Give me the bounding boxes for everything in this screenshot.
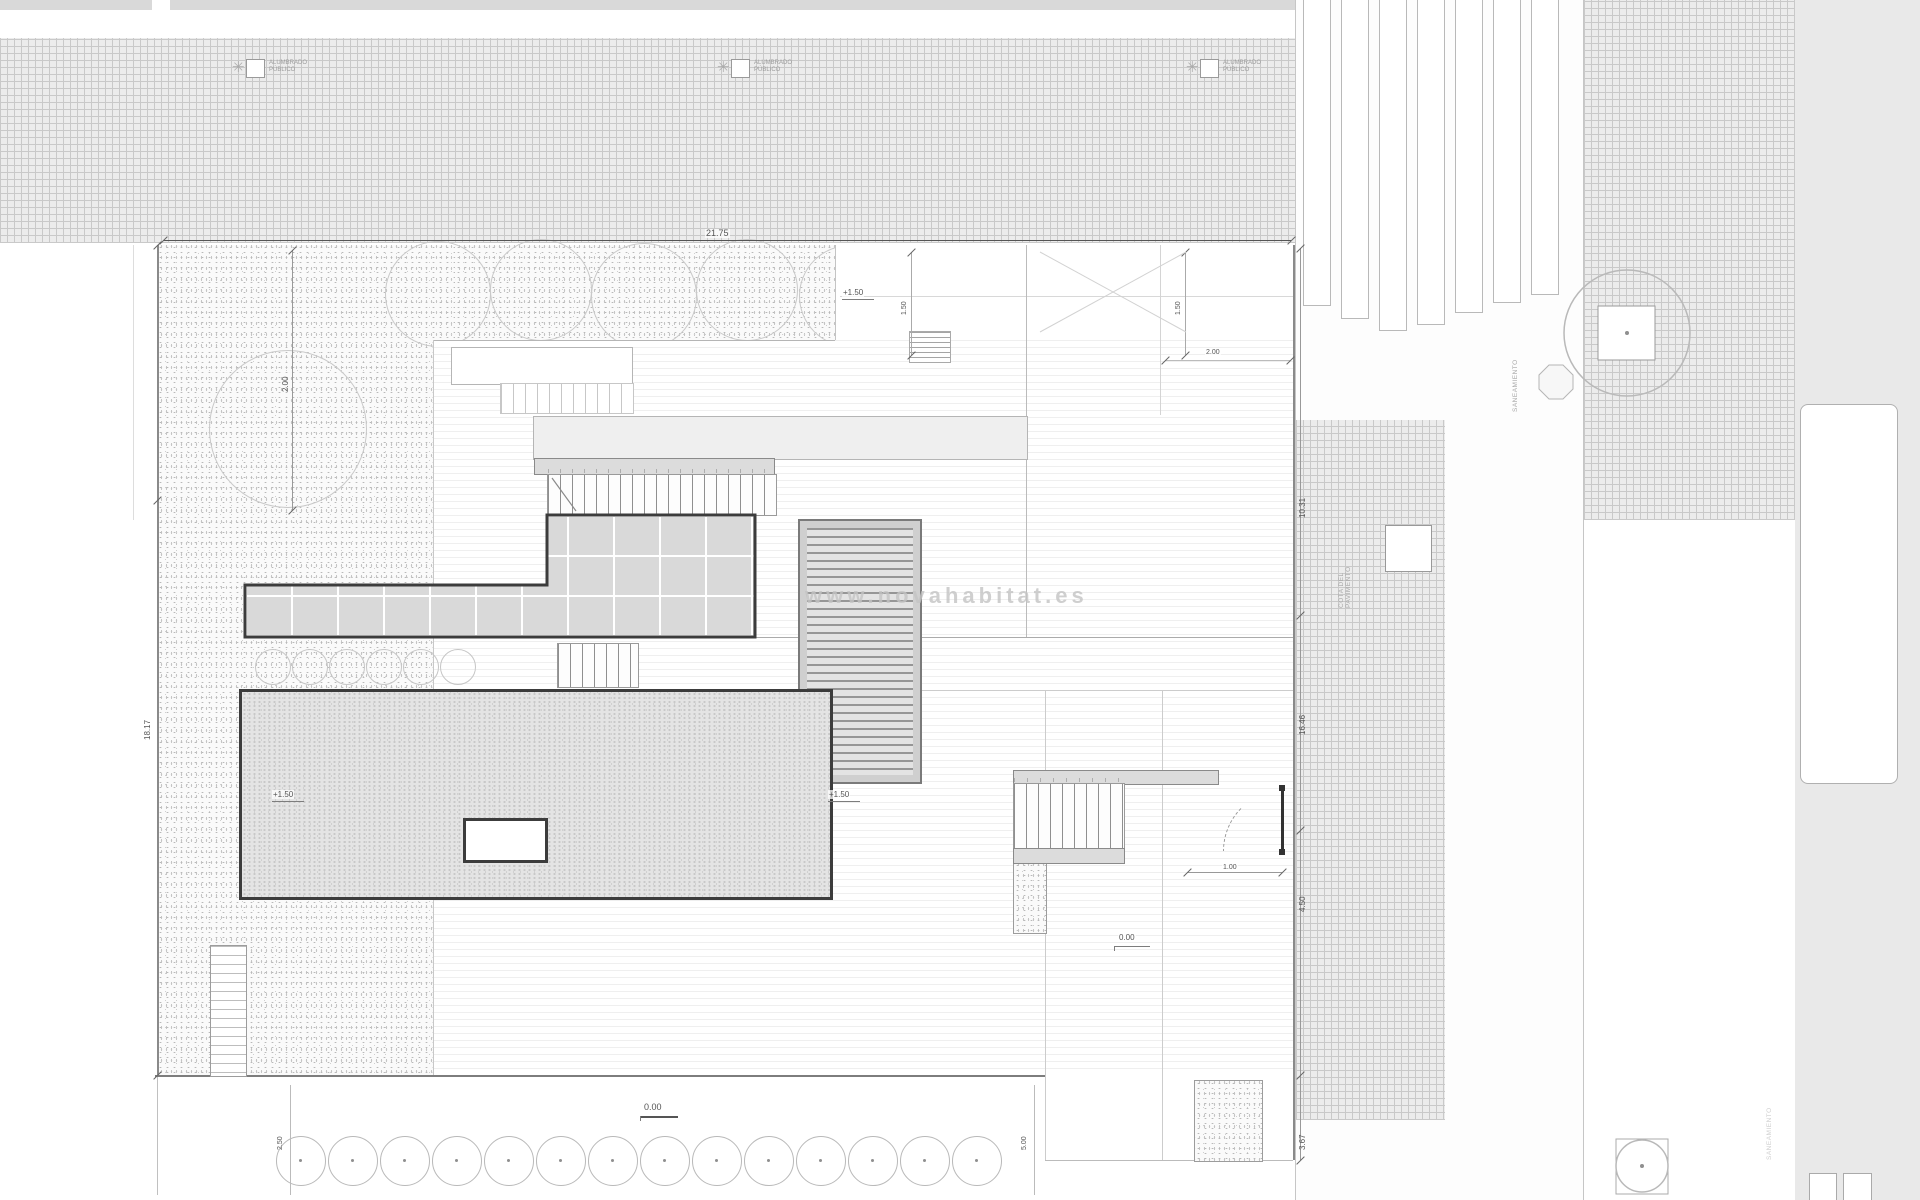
tree-canopy-circle (591, 243, 697, 349)
level-drive-tick (1114, 946, 1115, 951)
level-terrace-top: +1.50 (842, 288, 864, 297)
street-tree-trunk (351, 1159, 354, 1162)
site-plan-drawing: ✳ALUMBRADO PÚBLICO✳ALUMBRADO PÚBLICO✳ALU… (0, 0, 1920, 1200)
dim-north-stub-a: 1.50 (900, 301, 909, 315)
level-walkway-mid: +1.50 (828, 790, 850, 799)
street-tree-trunk (559, 1159, 562, 1162)
level-street-south: 0.00 (643, 1103, 663, 1112)
tree-planter-square-south (1616, 1139, 1668, 1194)
street-tree-canopy-south (1616, 1140, 1668, 1192)
west-faint-line (133, 245, 134, 520)
dim-north-stub-b: 1.50 (1174, 301, 1183, 315)
dim-entry-offset: 2.00 (1205, 348, 1221, 357)
tree-canopy-circle (209, 350, 367, 508)
pavement-note-line1: COTA DEL (1338, 566, 1345, 608)
pavement-note: COTA DEL PAVIMENTO (1338, 566, 1352, 608)
north-curb-strip (0, 0, 1295, 10)
planting-bed-east (1013, 862, 1047, 934)
dim-south-stub-left: 2.50 (276, 1136, 285, 1150)
side-gate-fence (210, 945, 247, 1077)
crosswalk-stripe (1417, 0, 1445, 325)
pavement-note-line2: PAVIMENTO (1345, 566, 1352, 608)
dim-line-east-chain (1300, 248, 1301, 1160)
north-curb-gap (152, 0, 170, 10)
dim-north-width: 21.75 (705, 229, 730, 238)
tree-canopy-circle (696, 239, 798, 341)
street-lamp-label: ALUMBRADO PÚBLICO (1223, 60, 1265, 74)
street-tree-trunk (767, 1159, 770, 1162)
street-tree-trunk (923, 1159, 926, 1162)
gate-leaf (1281, 790, 1284, 850)
gate-hinge-top (1279, 785, 1285, 791)
street-tree-trunk (403, 1159, 406, 1162)
street-tree-trunk (507, 1159, 510, 1162)
street-lamp-icon (1200, 59, 1219, 78)
street-tree-trunk (715, 1159, 718, 1162)
gate-hinge-bottom (1279, 849, 1285, 855)
dim-line-entry (1165, 360, 1290, 361)
stair-step-numbers (1014, 778, 1124, 782)
watermark: www.novahabitat.es (805, 583, 1088, 609)
crosswalk-stripe (1379, 0, 1407, 331)
main-stairs (547, 474, 777, 516)
parcel-east-boundary (1293, 245, 1295, 1160)
street-lamp-label: ALUMBRADO PÚBLICO (754, 60, 796, 74)
shrub-circle (292, 649, 328, 685)
sewer-label-south: SANEAMIENTO (1766, 1107, 1773, 1160)
parcel-west-boundary (157, 245, 159, 1075)
dim-east-seg-2: 16.46 (1298, 715, 1307, 735)
street-tree-trunk (871, 1159, 874, 1162)
crosswalk-stripe (1531, 0, 1559, 295)
dim-stub-south-left (290, 1085, 291, 1195)
street-tree-trunk (455, 1159, 458, 1162)
shrub-circle (440, 649, 476, 685)
street-planter-long (1800, 404, 1898, 784)
upper-level-slab (533, 416, 1028, 460)
shrub-circle (329, 649, 365, 685)
crosswalk-stripe (1455, 0, 1483, 313)
dim-stub-a (911, 252, 912, 355)
level-terrace-top-line (842, 299, 874, 300)
utility-box (1385, 525, 1432, 572)
street-tree-trunk (819, 1159, 822, 1162)
street-tree-trunk (975, 1159, 978, 1162)
street-lamp-icon (246, 59, 265, 78)
crosswalk-stripe (1341, 0, 1369, 319)
lamp-star-icon: ✳ (232, 60, 245, 75)
street-lamp-label: ALUMBRADO PÚBLICO (269, 60, 311, 74)
parcel-west-extension (157, 1075, 158, 1195)
crosswalk-stripe (1493, 0, 1521, 303)
street-tree-trunk (663, 1159, 666, 1162)
level-garden-west-line (272, 801, 304, 802)
tree-canopy-circle (490, 239, 592, 341)
upper-stairs (500, 383, 634, 414)
drive-mid-line (1162, 690, 1163, 1160)
tree-canopy-circle (385, 241, 491, 347)
dim-line-north (163, 240, 1291, 241)
dim-west-height: 18.17 (143, 720, 152, 740)
street-tree-trunk (299, 1159, 302, 1162)
dim-line-gate (1187, 872, 1282, 873)
level-drive: 0.00 (1118, 933, 1136, 942)
dim-south-stub-right: 5.00 (1020, 1136, 1029, 1150)
porch-canopy (451, 347, 633, 385)
dim-east-seg-3: 4.50 (1298, 896, 1307, 912)
house-partition (1160, 245, 1161, 415)
lower-building-roof (239, 689, 833, 900)
level-drive-line (1114, 946, 1150, 947)
level-street-south-tick (640, 1116, 641, 1121)
rooflight-opening (463, 818, 548, 863)
street-tree-trunk (611, 1159, 614, 1162)
level-street-south-line (640, 1116, 678, 1118)
street-utility-box-1 (1809, 1173, 1837, 1200)
planting-bed-drive (1194, 1080, 1263, 1162)
south-stair-base (1013, 848, 1125, 864)
dim-stub-b (1185, 252, 1186, 355)
far-right-sidewalk (1584, 0, 1795, 520)
shrub-circle (255, 649, 291, 685)
dim-line-west-inner (292, 250, 293, 510)
north-sidewalk-pavement (0, 38, 1295, 243)
crosswalk-stripe (1303, 0, 1331, 306)
sewer-label-north: SANEAMIENTO (1512, 359, 1519, 412)
terrace-top-edge (433, 340, 835, 341)
lamp-star-icon: ✳ (717, 60, 730, 75)
north-sidewalk-band (0, 10, 1295, 38)
street-tree-trunk-south (1640, 1164, 1644, 1168)
stair-step-numbers (548, 469, 776, 473)
level-walkway-mid-line (828, 801, 860, 802)
dim-west-offset: 2.00 (281, 376, 290, 392)
facade-line-horizontal (840, 296, 1293, 297)
shrub-circle (403, 649, 439, 685)
lamp-star-icon: ✳ (1186, 60, 1199, 75)
street-utility-box-2 (1843, 1173, 1872, 1200)
dim-east-seg-4: 3.67 (1298, 1134, 1307, 1150)
dim-gate-width: 1.00 (1222, 863, 1238, 872)
south-stairs (1013, 783, 1125, 850)
shrub-circle (366, 649, 402, 685)
upper-floor-area (835, 245, 1293, 340)
dim-stub-south-right (1034, 1085, 1035, 1195)
garden-steps (557, 643, 639, 688)
facade-line-vertical (835, 245, 836, 340)
parcel-south-boundary (155, 1075, 1045, 1077)
street-lamp-icon (731, 59, 750, 78)
dim-east-seg-1: 10.31 (1298, 498, 1307, 518)
level-garden-west: +1.50 (272, 790, 294, 799)
side-steps (909, 331, 951, 363)
